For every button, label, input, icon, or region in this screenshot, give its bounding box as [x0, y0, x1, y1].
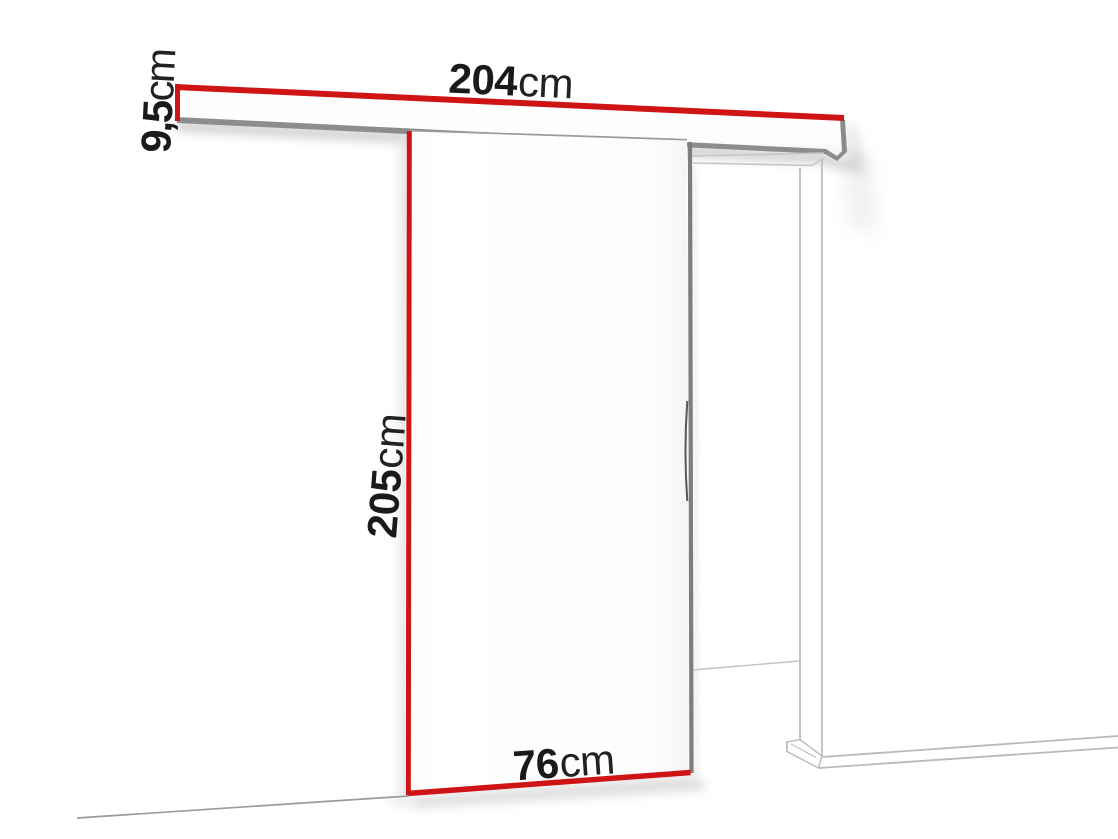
svg-text:76cm: 76cm: [511, 735, 616, 789]
svg-text:204cm: 204cm: [448, 55, 575, 108]
svg-text:9,5cm: 9,5cm: [132, 49, 184, 154]
svg-text:205cm: 205cm: [358, 412, 415, 540]
